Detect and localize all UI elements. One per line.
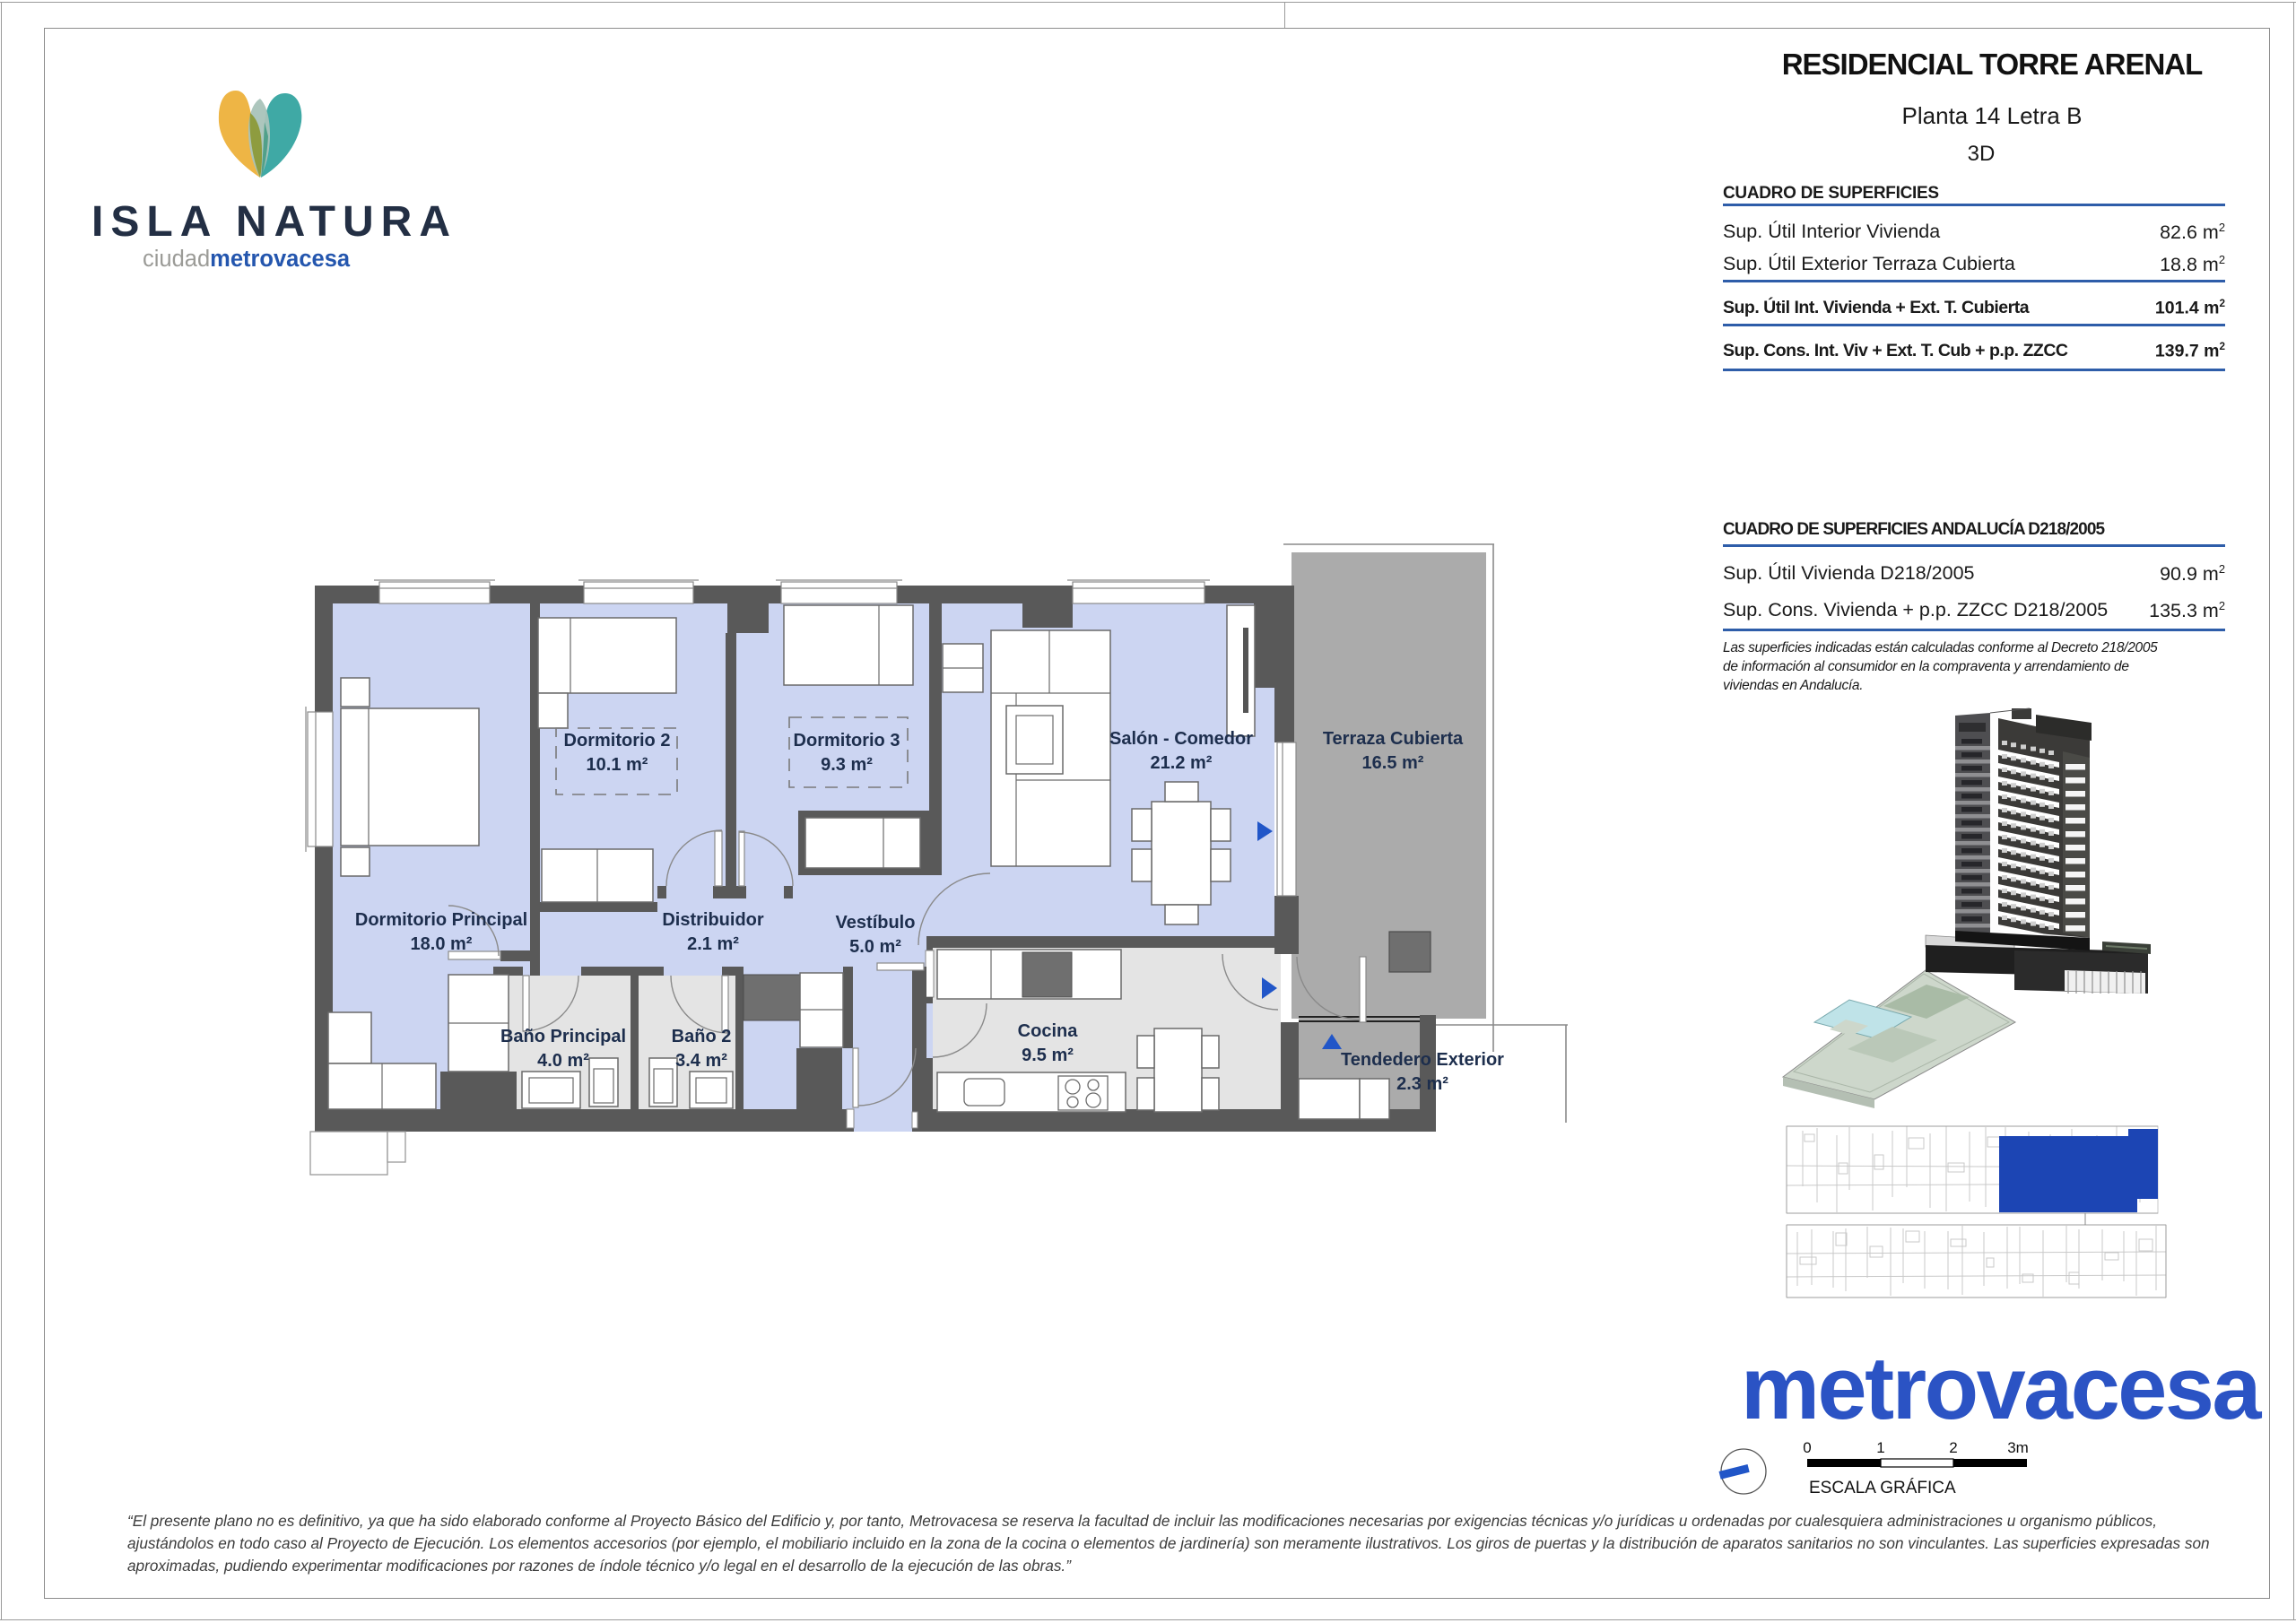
svg-text:2.1 m²: 2.1 m²	[687, 934, 739, 954]
svg-text:Dormitorio 2: Dormitorio 2	[564, 731, 671, 751]
svg-text:ciudadmetrovacesa: ciudadmetrovacesa	[143, 247, 351, 272]
svg-text:4.0 m²: 4.0 m²	[537, 1051, 589, 1071]
svg-text:21.2 m²: 21.2 m²	[1151, 753, 1213, 773]
svg-text:Dormitorio 3: Dormitorio 3	[794, 731, 900, 751]
svg-text:9.3 m²: 9.3 m²	[821, 755, 873, 775]
svg-text:9.5 m²: 9.5 m²	[1022, 1046, 1074, 1065]
svg-text:16.5 m²: 16.5 m²	[1362, 753, 1424, 773]
svg-text:ESCALA GRÁFICA: ESCALA GRÁFICA	[1809, 1479, 1956, 1497]
svg-text:Baño 2: Baño 2	[672, 1027, 732, 1046]
svg-text:Dormitorio Principal: Dormitorio Principal	[355, 910, 527, 930]
svg-text:Tendedero Exterior: Tendedero Exterior	[1341, 1050, 1504, 1070]
svg-text:10.1 m²: 10.1 m²	[587, 755, 648, 775]
svg-text:3m: 3m	[2007, 1439, 2029, 1456]
svg-text:5.0 m²: 5.0 m²	[849, 937, 901, 957]
svg-text:ISLA NATURA: ISLA NATURA	[91, 198, 457, 246]
svg-text:Cocina: Cocina	[1018, 1021, 1079, 1041]
svg-text:Distribuidor: Distribuidor	[662, 910, 764, 930]
svg-text:Vestíbulo: Vestíbulo	[836, 913, 916, 933]
svg-text:Salón - Comedor: Salón - Comedor	[1109, 729, 1253, 749]
svg-text:Baño Principal: Baño Principal	[500, 1027, 626, 1046]
svg-text:Terraza Cubierta: Terraza Cubierta	[1323, 729, 1464, 749]
svg-text:0: 0	[1803, 1439, 1811, 1456]
svg-text:2: 2	[1949, 1439, 1957, 1456]
svg-text:1: 1	[1876, 1439, 1884, 1456]
svg-text:18.0 m²: 18.0 m²	[411, 934, 473, 954]
svg-text:metrovacesa: metrovacesa	[1741, 1338, 2262, 1437]
svg-text:2.3 m²: 2.3 m²	[1396, 1074, 1448, 1094]
svg-text:3.4 m²: 3.4 m²	[675, 1051, 727, 1071]
